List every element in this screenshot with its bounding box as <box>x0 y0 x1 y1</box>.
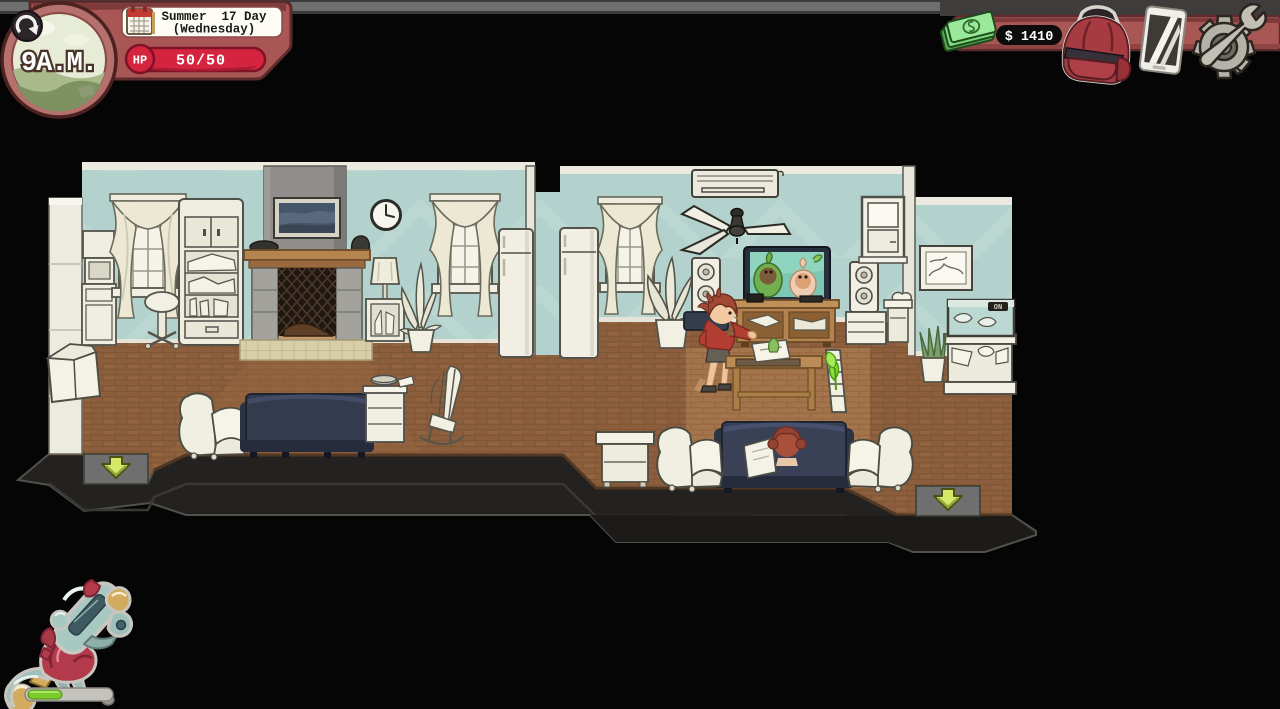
svg-text:ON: ON <box>994 304 1002 312</box>
svg-text:HP: HP <box>133 54 147 68</box>
svg-text:$ 1410: $ 1410 <box>1005 30 1054 45</box>
svg-text:50/50: 50/50 <box>176 53 226 70</box>
svg-text:9A.M.: 9A.M. <box>21 49 97 79</box>
svg-text:(Wednesday): (Wednesday) <box>173 23 256 37</box>
